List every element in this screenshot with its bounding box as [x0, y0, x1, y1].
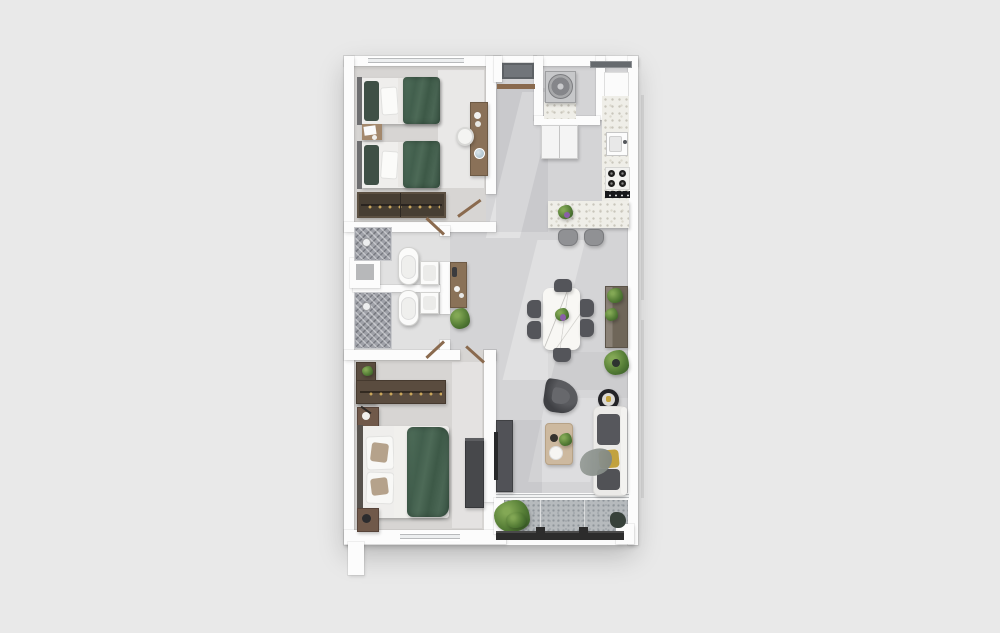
stove-burner-4	[619, 180, 626, 187]
master-nightstand-2-headphones	[362, 514, 371, 523]
twin-nightstand-cup	[372, 135, 377, 140]
balcony-plant-small	[506, 512, 526, 528]
washer-counter	[544, 102, 576, 119]
tv-console	[496, 420, 513, 492]
desk-chair	[456, 127, 474, 146]
dining-chair-right-1	[580, 299, 594, 317]
sideboard-plant-2	[605, 308, 618, 321]
coffee-table-plant	[559, 433, 572, 446]
twin-bed-2-duvet	[403, 141, 440, 188]
master-accent-pillow-1	[370, 442, 389, 463]
dining-chair-bottom	[553, 348, 571, 362]
twin-wardrobe-hangers	[363, 198, 440, 212]
sofa-cushion-1	[597, 414, 620, 445]
wall-master-top-west	[344, 350, 460, 360]
wall-protrusion	[348, 542, 364, 575]
master-dresser	[465, 438, 484, 508]
wall-outer-left	[344, 56, 354, 545]
desk-cup	[475, 121, 481, 127]
stove-burner-2	[619, 170, 626, 177]
dining-chair-left-2	[527, 321, 541, 339]
dining-centerpiece-flowers	[560, 314, 566, 321]
railing-support-2	[579, 527, 588, 533]
stove-control-panel	[605, 191, 630, 198]
balcony-railing-highlight	[496, 531, 624, 533]
dining-floor-plant-pot	[612, 359, 620, 367]
entry-mat	[502, 63, 534, 79]
master-dresser-top-edge	[465, 438, 484, 441]
bar-stool-2	[584, 229, 604, 246]
window-kitchen	[590, 61, 632, 68]
dining-chair-top	[554, 279, 572, 292]
coffee-table-tray	[549, 446, 563, 460]
master-bed-duvet	[407, 427, 449, 517]
desk-globe	[474, 148, 485, 159]
utility-niche-inner	[356, 264, 374, 280]
twin-bed-1-headboard	[357, 77, 362, 125]
sideboard-plant-1	[607, 288, 623, 303]
twin-bed-1-duvet	[403, 77, 440, 124]
wall-outer-right	[628, 56, 638, 545]
bath1-shower	[354, 227, 392, 261]
wall-utility-left	[534, 56, 543, 120]
exterior-ledge-lower	[641, 320, 644, 498]
hall-plant	[450, 308, 470, 329]
bath2-shower	[354, 292, 392, 349]
balcony-planter-dark	[610, 512, 626, 528]
exterior-ledge-upper	[641, 95, 644, 300]
bath1-door-opening-floor	[440, 234, 450, 262]
master-bed-headboard	[357, 425, 363, 519]
island-flowers	[564, 212, 570, 218]
entry-threshold	[497, 84, 535, 89]
railing-support-1	[536, 527, 545, 533]
bath1-shower-drain	[362, 238, 371, 247]
side-table-item	[606, 396, 611, 402]
entry-sill	[498, 56, 536, 62]
bar-stool-1	[558, 229, 578, 246]
master-wardrobe-hangers	[364, 385, 442, 399]
desk-lamp	[474, 112, 481, 119]
coffee-table-bowl	[550, 434, 558, 442]
bath2-toilet-seat	[401, 297, 416, 320]
dining-chair-right-2	[580, 319, 594, 337]
twin-bed-1-pillow	[380, 86, 399, 115]
twin-bed-2-accent-pillow	[364, 145, 379, 185]
wall-entry-stub	[494, 56, 502, 82]
window-master-bedroom	[400, 533, 460, 541]
wall-bath-right-mid	[440, 262, 450, 314]
kitchen-faucet	[623, 140, 627, 144]
washer-drum	[548, 74, 573, 99]
sofa-backrest	[621, 407, 627, 495]
window-twin-bedroom	[368, 57, 464, 65]
master-wardrobe-plant	[362, 366, 373, 376]
twin-bed-2-pillow	[380, 150, 399, 179]
hall-console-bottle-2	[459, 293, 464, 298]
bath2-sink-basin	[423, 296, 436, 310]
bath1-toilet-seat	[401, 255, 416, 279]
bath1-sink-basin	[423, 265, 436, 281]
dining-chair-left-1	[527, 300, 541, 318]
floorplan-canvas	[0, 0, 1000, 633]
bath2-shower-drain	[362, 302, 371, 311]
twin-bed-2-headboard	[357, 141, 362, 189]
twin-wardrobe-divider	[400, 193, 401, 217]
tv-screen	[494, 432, 498, 480]
kitchen-sink-basin	[609, 136, 622, 152]
master-accent-pillow-2	[370, 477, 389, 496]
bath2-door-opening-floor	[440, 312, 450, 340]
stove-burner-1	[608, 170, 615, 177]
stove-burner-3	[608, 180, 615, 187]
hall-console-vase	[452, 267, 457, 277]
kitchen-upper-cabinet	[604, 72, 629, 98]
twin-bed-1-accent-pillow	[364, 81, 379, 121]
fridge-divider	[559, 126, 560, 158]
hall-console-bottle-1	[454, 286, 460, 292]
